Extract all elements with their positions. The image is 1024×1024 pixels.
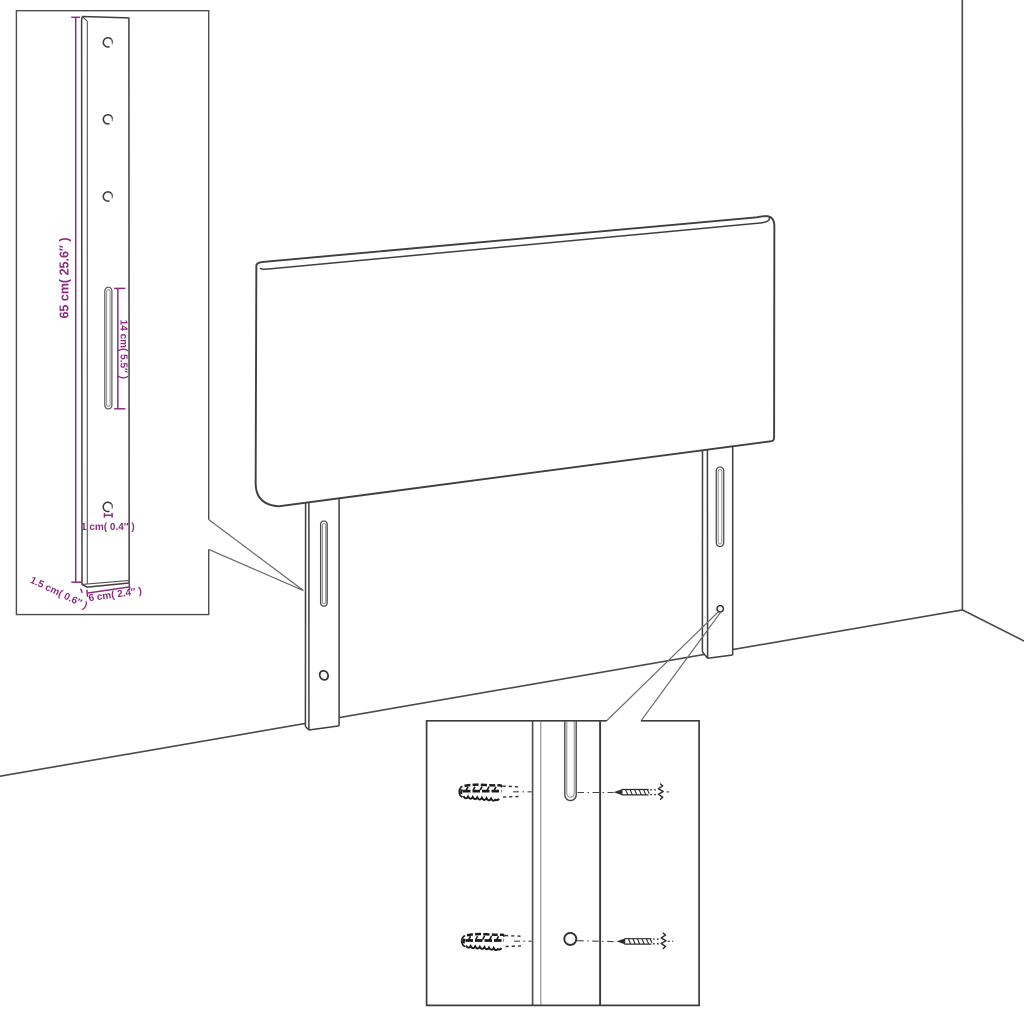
svg-text:1.5 cm( 0.6″ ): 1.5 cm( 0.6″ ) [28, 575, 89, 612]
svg-text:1 cm( 0.4″ ): 1 cm( 0.4″ ) [81, 522, 135, 533]
svg-text:65 cm( 25.6″ ): 65 cm( 25.6″ ) [57, 237, 71, 318]
svg-text:6 cm( 2.4″ ): 6 cm( 2.4″ ) [88, 586, 143, 604]
svg-text:14 cm( 5.5″ ): 14 cm( 5.5″ ) [117, 320, 128, 379]
